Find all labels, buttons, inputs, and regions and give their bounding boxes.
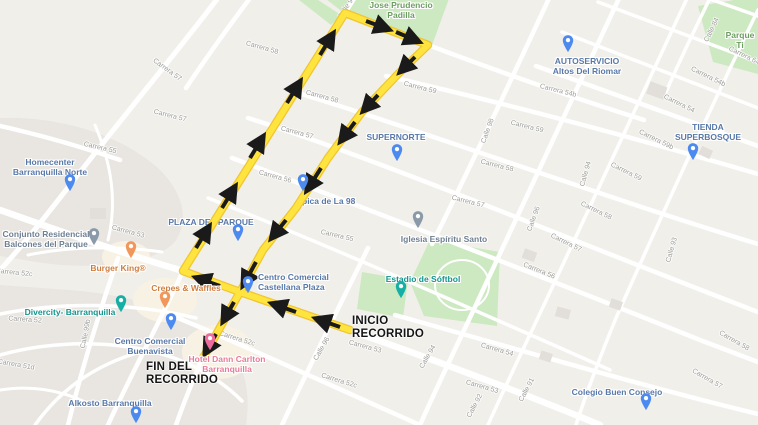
map-pin-icon <box>130 405 143 424</box>
poi-pin-supernorte[interactable] <box>391 143 404 162</box>
map-pin-icon <box>64 173 77 192</box>
poi-pin-crepes-waffles[interactable] <box>159 290 172 309</box>
map-pin-icon <box>204 332 217 351</box>
map-pin-icon <box>242 275 255 294</box>
poi-pin-tienda-superbosque[interactable] <box>687 142 700 161</box>
poi-label-tienda-superbosque[interactable]: TIENDA SUPERBOSQUE <box>675 122 741 142</box>
map-pin-icon <box>640 392 653 411</box>
map-pin-icon <box>125 240 138 259</box>
poi-pin-hotel-dann-carlton[interactable] <box>204 332 217 351</box>
map-pin-icon <box>562 34 575 53</box>
poi-pin-conjunto-residencial[interactable] <box>88 227 101 246</box>
map-pin-icon <box>88 227 101 246</box>
poi-pin-homecenter[interactable] <box>64 173 77 192</box>
poi-pin-divercity[interactable] <box>115 294 128 313</box>
poi-pin-buenavista[interactable] <box>165 312 178 331</box>
poi-pin-alkosto[interactable] <box>130 405 143 424</box>
poi-pin-colegio-buen-consejo[interactable] <box>640 392 653 411</box>
map-pin-icon <box>395 280 408 299</box>
poi-label-jose-prudencio-padilla[interactable]: Jose Prudencio Padilla <box>369 0 432 20</box>
map-pin-icon <box>165 312 178 331</box>
poi-label-conjunto-residencial[interactable]: Conjunto Residencial Balcones del Parque <box>3 229 90 249</box>
poi-pin-castellana-plaza[interactable] <box>242 275 255 294</box>
poi-pin-estadio-de-softbol[interactable] <box>395 280 408 299</box>
poi-label-burger-king[interactable]: Burger King® <box>90 263 145 273</box>
map-pin-icon <box>391 143 404 162</box>
route-overlay <box>0 0 758 425</box>
poi-label-castellana-plaza[interactable]: Centro Comercial Castellana Plaza <box>258 272 329 292</box>
map-pin-icon <box>687 142 700 161</box>
poi-pin-iglesia-espiritu-santo[interactable] <box>412 210 425 229</box>
poi-label-buenavista[interactable]: Centro Comercial Buenavista <box>115 336 186 356</box>
poi-label-parque-t[interactable]: Parque Ti <box>726 30 755 50</box>
poi-label-iglesia-espiritu-santo[interactable]: Iglesia Espíritu Santo <box>401 234 487 244</box>
map-pin-icon <box>412 210 425 229</box>
map-pin-icon <box>159 290 172 309</box>
poi-label-divercity[interactable]: Divercity- Barranquilla <box>25 307 116 317</box>
map-pin-icon <box>232 223 245 242</box>
poi-pin-olimpica[interactable] <box>297 173 310 192</box>
map-pin-icon <box>297 173 310 192</box>
poi-label-autoservicio[interactable]: AUTOSERVICIO Altos Del Riomar <box>553 56 622 76</box>
poi-label-hotel-dann-carlton[interactable]: Hotel Dann Carlton Barranquilla <box>189 354 266 374</box>
poi-label-supernorte[interactable]: SUPERNORTE <box>366 132 425 142</box>
poi-pin-plaza-del-parque[interactable] <box>232 223 245 242</box>
map-pin-icon <box>115 294 128 313</box>
poi-pin-autoservicio[interactable] <box>562 34 575 53</box>
poi-pin-burger-king[interactable] <box>125 240 138 259</box>
map-canvas[interactable]: Calle 9 Carrera 57 Carrera 57 Carrera 58… <box>0 0 758 425</box>
